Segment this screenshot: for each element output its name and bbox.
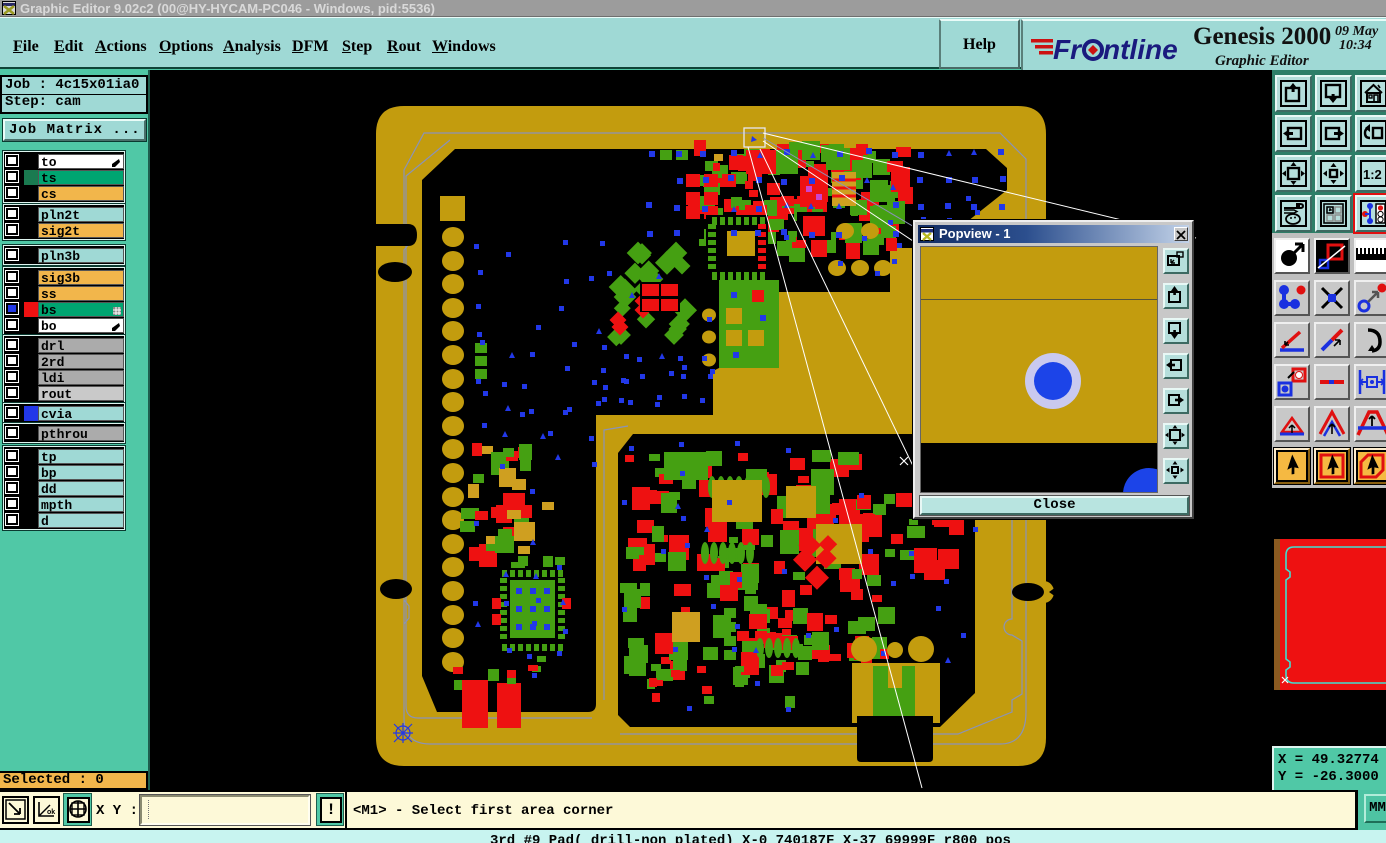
- svg-text:ntline: ntline: [1103, 34, 1178, 65]
- svg-text:ok: ok: [47, 809, 55, 816]
- svg-text:Fr: Fr: [1053, 34, 1083, 65]
- svg-text:1:2: 1:2: [1363, 167, 1382, 182]
